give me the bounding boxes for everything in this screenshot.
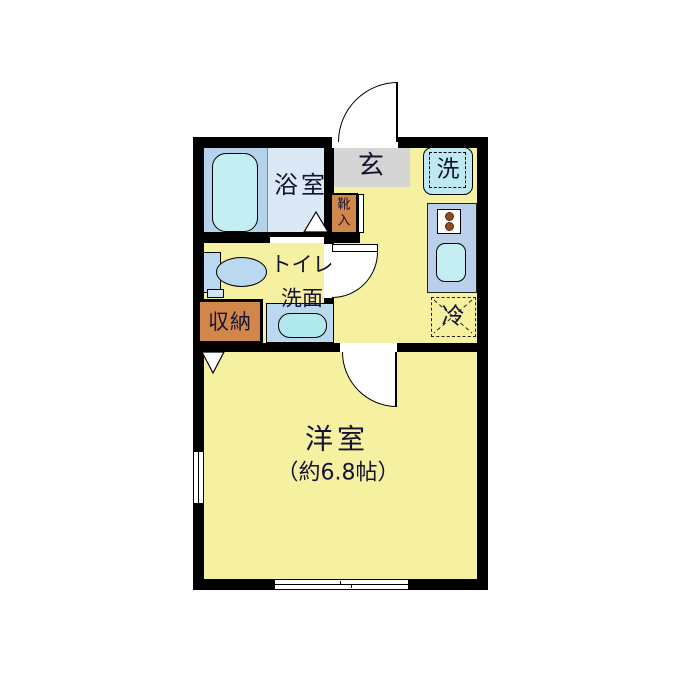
label-main-room: 洋室 xyxy=(305,422,369,457)
label-toilet-washroom: トイレ 洗面 xyxy=(271,248,334,315)
label-washer: 洗 xyxy=(437,156,460,185)
label-toilet-line1: トイレ xyxy=(271,248,334,282)
label-entrance: 玄 xyxy=(358,150,384,183)
window-bottom-sash-tick-1 xyxy=(340,581,341,585)
stove-burner-1 xyxy=(445,212,454,221)
washbasin-bowl xyxy=(278,313,327,338)
bathtub xyxy=(212,153,258,232)
label-storage: 収納 xyxy=(208,309,252,335)
window-bottom-sash-tick-2 xyxy=(351,584,352,588)
label-shoe-cabinet: 靴 入 xyxy=(337,197,350,228)
window-left-mullion xyxy=(198,452,199,503)
label-main-room-size: （約6.8帖） xyxy=(277,459,400,487)
main-room-door-opening xyxy=(340,343,397,352)
label-toilet-line2: 洗面 xyxy=(271,282,334,316)
label-fridge: 冷 xyxy=(442,303,465,332)
window-bottom-rail xyxy=(275,584,408,585)
storage-door-swing-triangle xyxy=(201,351,225,375)
window-left-wall xyxy=(193,452,204,503)
floorplan-canvas: 浴室 玄 洗 靴 入 トイレ 洗面 収納 冷 洋室 （約6.8帖） xyxy=(0,0,700,700)
label-shoe-char-bottom: 入 xyxy=(337,213,350,229)
kitchen-sink xyxy=(436,243,466,282)
stove xyxy=(437,209,461,234)
wall-right xyxy=(477,137,488,590)
window-bottom-wall xyxy=(275,579,408,590)
bathroom-zone-divider xyxy=(267,148,268,232)
shoe-cabinet-door xyxy=(358,194,364,233)
bathroom-door-swing-triangle xyxy=(303,211,329,234)
entrance-door-swing xyxy=(338,82,398,142)
toilet-step xyxy=(207,289,224,298)
toilet-door-leaf xyxy=(332,244,378,252)
stove-burner-2 xyxy=(445,222,454,231)
label-bathroom: 浴室 xyxy=(274,170,328,200)
toilet-bowl xyxy=(216,257,267,287)
label-shoe-char-top: 靴 xyxy=(337,197,350,213)
bathroom-door-slab xyxy=(270,236,324,243)
